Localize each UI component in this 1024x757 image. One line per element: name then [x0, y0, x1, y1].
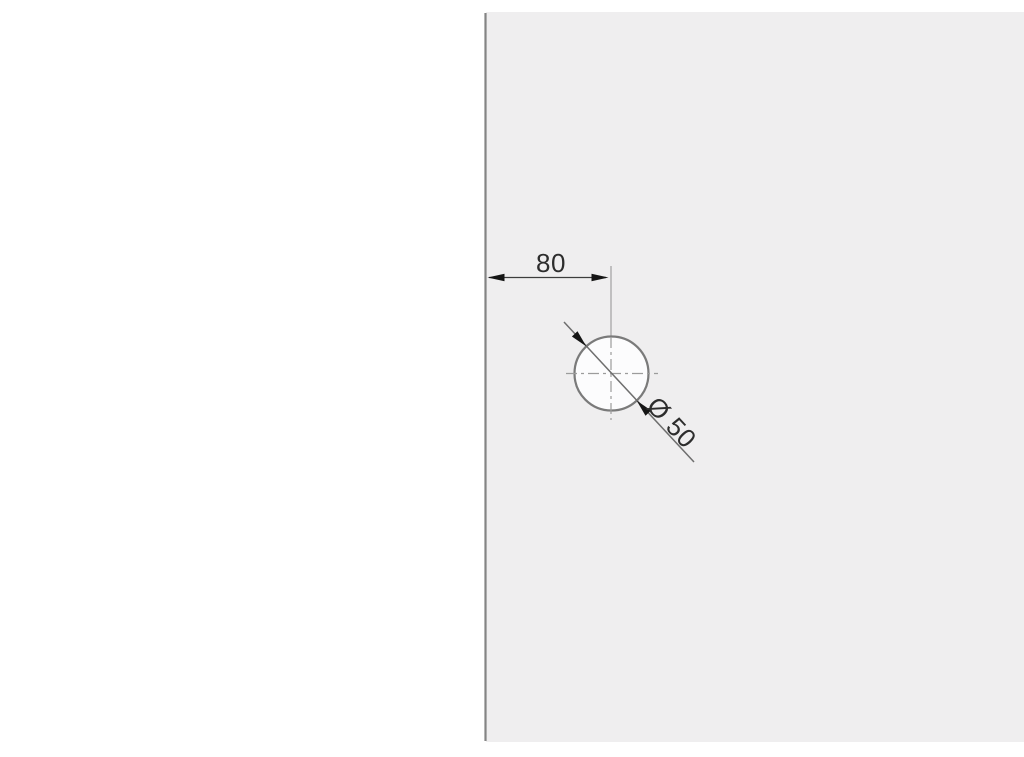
width-dimension-label: 80 [536, 248, 566, 278]
drawing-stage: 80 Ø 50 [0, 0, 1024, 757]
technical-drawing: 80 Ø 50 [0, 0, 1024, 757]
panel-surface [486, 12, 1024, 742]
